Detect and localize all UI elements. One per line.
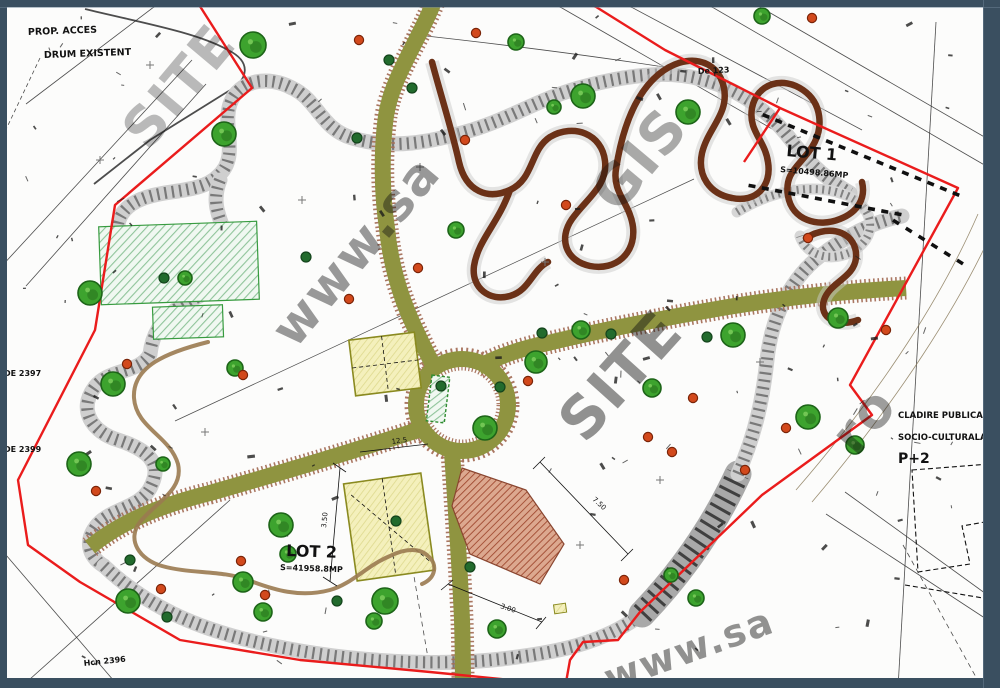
tree-highlight — [577, 326, 581, 330]
tree-highlight — [371, 617, 374, 620]
red-shrub-icon — [619, 575, 628, 584]
tree-highlight — [123, 596, 128, 601]
bush-icon — [391, 516, 401, 526]
red-shrub-icon — [471, 28, 480, 37]
bush-icon — [495, 382, 505, 392]
tree-highlight — [276, 520, 281, 525]
tree-icon — [754, 8, 770, 24]
red-shrub-icon — [460, 135, 469, 144]
lot2-title: LOT 2 — [286, 541, 337, 562]
red-shrub-icon — [688, 393, 697, 402]
survey-mark — [712, 57, 714, 63]
tree-icon — [366, 613, 382, 629]
tree-icon — [828, 308, 848, 328]
red-shrub-icon — [413, 263, 422, 272]
tree-highlight — [160, 461, 163, 464]
red-shrub-icon — [238, 370, 247, 379]
red-shrub-icon — [260, 590, 269, 599]
dimension-label: 3.50 — [320, 512, 330, 528]
tree-icon — [796, 405, 820, 429]
red-shrub-icon — [807, 13, 816, 22]
tree-highlight — [532, 357, 536, 361]
tree-icon — [156, 457, 170, 471]
tree-highlight — [693, 594, 696, 597]
bush-icon — [384, 55, 394, 65]
tree-highlight — [248, 39, 253, 44]
right-block-line2: SOCIO-CULTURALA — [898, 433, 987, 443]
tree-highlight — [759, 12, 762, 15]
tree-highlight — [480, 423, 485, 428]
survey-mark — [537, 618, 542, 620]
survey-mark — [649, 219, 654, 221]
survey-mark — [495, 356, 502, 359]
tree-icon — [448, 222, 464, 238]
red-shrub-icon — [561, 200, 570, 209]
bush-icon — [159, 273, 169, 283]
tree-highlight — [85, 288, 90, 293]
red-shrub-icon — [881, 325, 890, 334]
tree-icon — [212, 122, 236, 146]
tree-highlight — [513, 38, 516, 41]
tree-icon — [116, 589, 140, 613]
bush-icon — [162, 612, 172, 622]
parcel-label: De 123 — [698, 65, 730, 76]
survey-mark — [64, 300, 65, 303]
tree-icon — [547, 100, 561, 114]
tree-icon — [101, 372, 125, 396]
tree-icon — [664, 568, 678, 582]
survey-tick — [951, 505, 952, 508]
bush-icon — [332, 596, 342, 606]
tree-highlight — [834, 314, 838, 318]
red-shrub-icon — [740, 465, 749, 474]
parcel-label: DE 2399 — [4, 445, 42, 454]
red-shrub-icon — [156, 584, 165, 593]
tree-highlight — [74, 459, 79, 464]
tree-icon — [67, 452, 91, 476]
tree-highlight — [728, 330, 733, 335]
tree-highlight — [803, 412, 808, 417]
bush-icon — [125, 555, 135, 565]
right-block-line1: CLADIRE PUBLICA — [898, 411, 983, 421]
tree-highlight — [493, 625, 497, 629]
survey-mark — [575, 208, 580, 210]
survey-mark — [483, 271, 486, 278]
site-plan-map: PROP. ACCES DRUM EXISTENT LOT 1 S=10498.… — [0, 0, 1000, 688]
red-shrub-icon — [523, 376, 532, 385]
tree-icon — [254, 603, 272, 621]
tree-highlight — [380, 595, 385, 600]
tree-icon — [488, 620, 506, 638]
survey-mark — [353, 195, 356, 201]
red-shrub-icon — [122, 359, 131, 368]
survey-tick — [552, 87, 557, 88]
tree-highlight — [108, 379, 113, 384]
survey-mark — [23, 288, 26, 289]
tree-icon — [233, 572, 253, 592]
tree-icon — [571, 84, 595, 108]
red-shrub-icon — [643, 432, 652, 441]
tree-highlight — [232, 364, 235, 367]
survey-mark — [736, 296, 738, 300]
tree-icon — [525, 351, 547, 373]
tree-highlight — [453, 226, 456, 229]
tree-highlight — [578, 91, 583, 96]
tree-icon — [473, 416, 497, 440]
tree-icon — [572, 321, 590, 339]
tree-icon — [508, 34, 524, 50]
survey-mark — [220, 225, 222, 230]
tree-icon — [78, 281, 102, 305]
bush-icon — [465, 562, 475, 572]
red-shrub-icon — [667, 447, 676, 456]
bush-icon — [436, 381, 446, 391]
bush-icon — [537, 328, 547, 338]
tree-icon — [372, 588, 398, 614]
tree-highlight — [239, 578, 243, 582]
bush-icon — [352, 133, 362, 143]
tree-highlight — [219, 129, 224, 134]
red-shrub-icon — [354, 35, 363, 44]
tree-highlight — [668, 572, 671, 575]
parcel-label: DE 2397 — [4, 369, 41, 378]
tree-highlight — [182, 275, 185, 278]
bush-icon — [407, 83, 417, 93]
tree-icon — [178, 271, 192, 285]
right-block-storeys: P+2 — [898, 451, 930, 467]
red-shrub-icon — [781, 423, 790, 432]
bush-icon — [702, 332, 712, 342]
red-shrub-icon — [91, 486, 100, 495]
tree-highlight — [551, 104, 554, 107]
red-shrub-icon — [803, 233, 812, 242]
tree-icon — [269, 513, 293, 537]
survey-tick — [835, 627, 839, 628]
tree-highlight — [683, 107, 688, 112]
survey-mark — [81, 16, 82, 19]
tree-icon — [688, 590, 704, 606]
tree-highlight — [259, 608, 263, 612]
tree-icon — [721, 323, 745, 347]
red-shrub-icon — [236, 556, 245, 565]
